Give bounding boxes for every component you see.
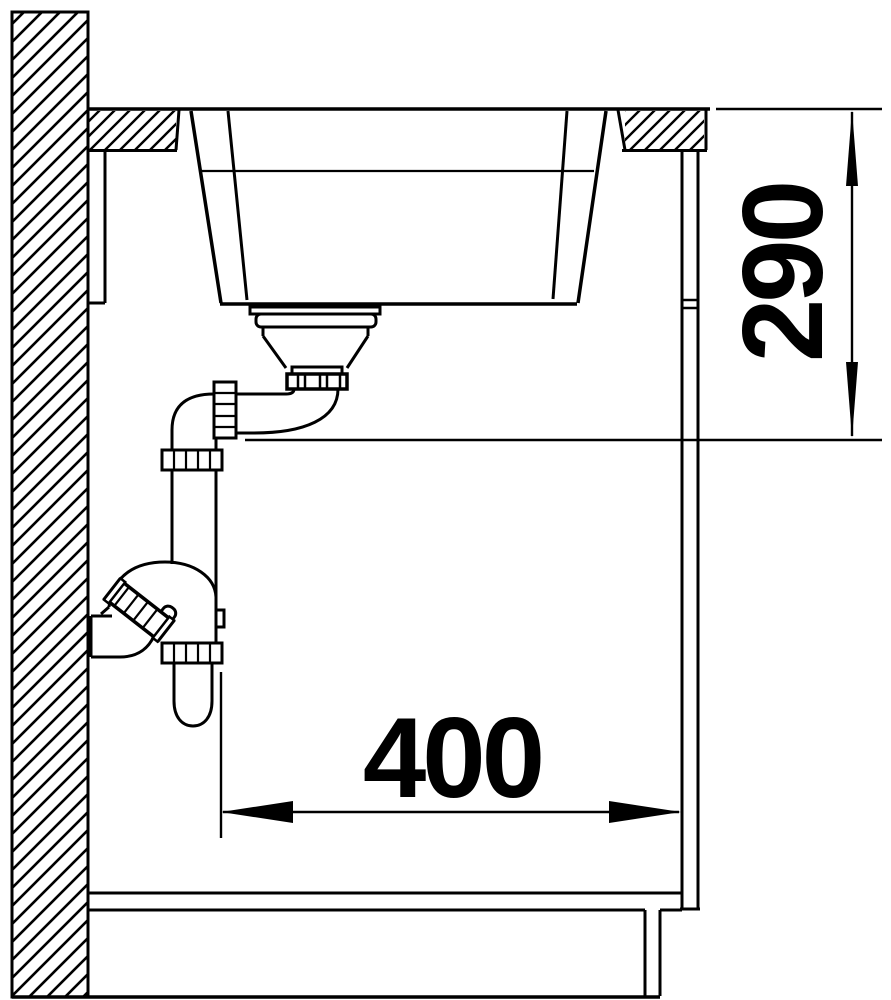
cabinet-bottom-shelf [88, 893, 682, 910]
drain-pipe [172, 389, 338, 643]
strainer-funnel-right [347, 336, 368, 368]
upper-pipe-nut [162, 450, 222, 470]
wall-outlet-pipe-bottom [91, 636, 154, 657]
worktop-right-hatch [625, 111, 704, 150]
dimension-label-400: 400 [363, 695, 541, 822]
wall-section-hatch [12, 12, 88, 997]
arrowhead-left [221, 801, 293, 823]
strainer-body [256, 314, 376, 327]
worktop-left-hatch [89, 111, 176, 150]
horizontal-pipe-bottom [236, 389, 338, 433]
sink-basin [191, 111, 606, 304]
dimension-label-290: 290 [720, 184, 847, 362]
wall-mounting-rail [88, 151, 105, 303]
worktop [88, 109, 710, 151]
wall [12, 12, 88, 997]
worktop-cutout-right-face [618, 110, 625, 150]
lower-pipe-nut [162, 643, 222, 663]
elbow-nut [214, 382, 236, 438]
arrowhead-down [846, 362, 858, 438]
sink-section-drawing: 290 400 [0, 0, 891, 1000]
sink-right-inner-wall [553, 111, 567, 299]
strainer-drain [250, 307, 380, 389]
arrowhead-right [609, 801, 681, 823]
sink-left-outer-wall [191, 111, 221, 303]
elbow-and-downpipe-left [172, 394, 214, 564]
sink-right-outer-wall [578, 111, 606, 303]
worktop-cutout-left-face [176, 110, 179, 150]
cabinet-side-panel [680, 151, 700, 909]
strainer-slip-nut [287, 374, 347, 389]
arrowhead-up [846, 110, 858, 186]
dimension-400: 400 [221, 672, 681, 838]
trap-cup-bottom [174, 701, 212, 726]
pipe-clip [216, 610, 224, 627]
technical-drawing-page: 290 400 [0, 0, 891, 1000]
sink-left-inner-wall [228, 111, 247, 300]
strainer-funnel-left [263, 336, 286, 368]
plinth [645, 910, 660, 996]
